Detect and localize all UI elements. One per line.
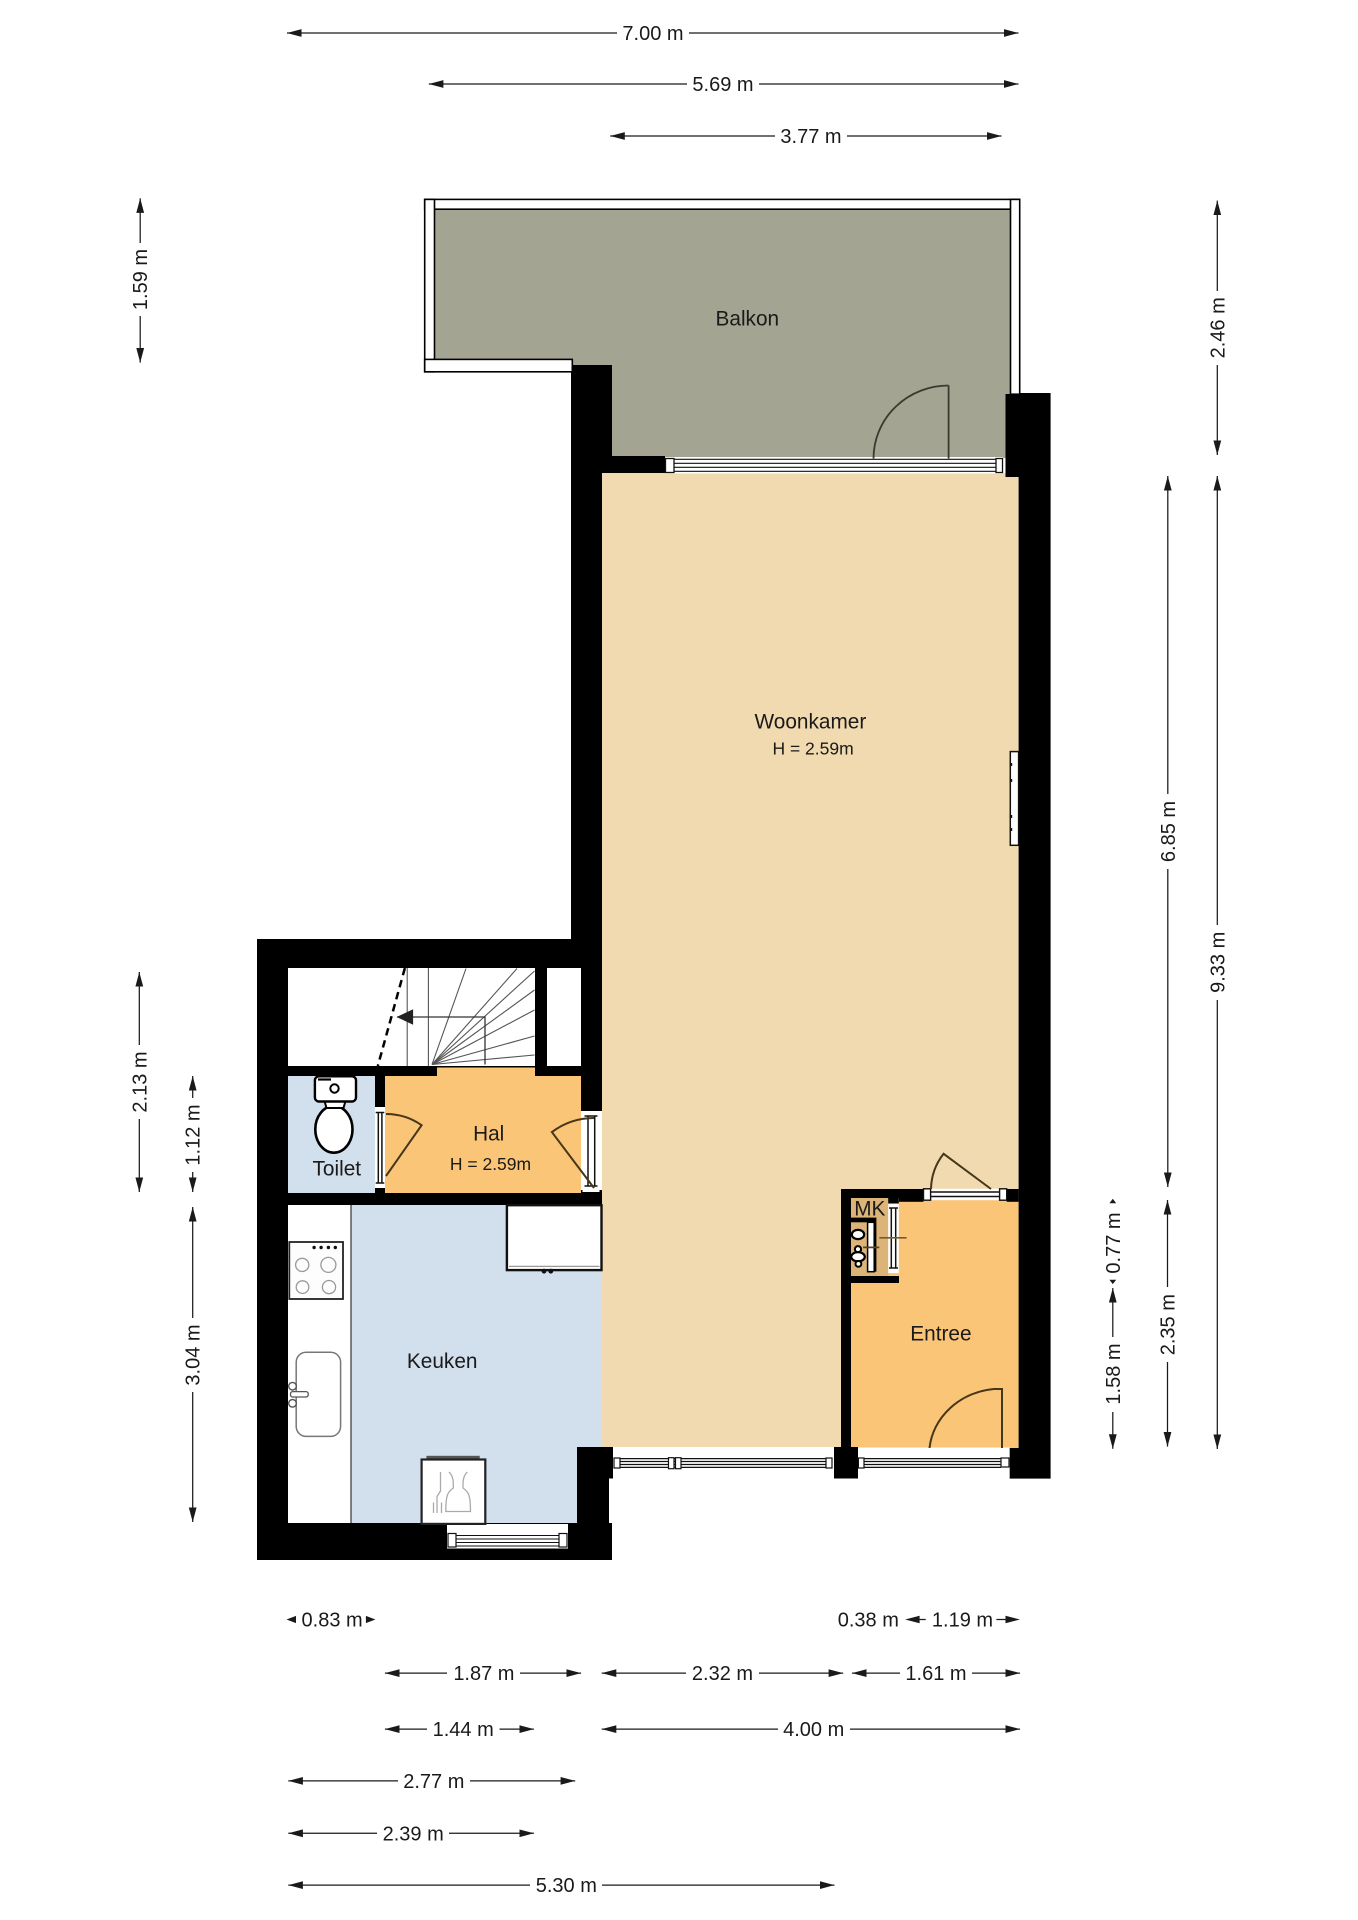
svg-text:MK: MK xyxy=(854,1197,885,1220)
svg-text:H = 2.59m: H = 2.59m xyxy=(772,739,853,759)
svg-text:Toilet: Toilet xyxy=(313,1158,362,1181)
svg-text:H = 2.59m: H = 2.59m xyxy=(450,1154,531,1174)
svg-text:Woonkamer: Woonkamer xyxy=(755,710,867,733)
svg-text:0.83 m: 0.83 m xyxy=(302,1610,363,1632)
svg-text:1.59 m: 1.59 m xyxy=(130,249,152,310)
svg-text:1.44 m: 1.44 m xyxy=(433,1719,494,1741)
svg-text:Balkon: Balkon xyxy=(716,308,780,331)
svg-text:5.69 m: 5.69 m xyxy=(692,74,753,96)
svg-text:1.12 m: 1.12 m xyxy=(183,1104,205,1165)
svg-text:1.19 m: 1.19 m xyxy=(932,1610,993,1632)
svg-text:1.58 m: 1.58 m xyxy=(1103,1343,1125,1404)
svg-text:3.04 m: 3.04 m xyxy=(183,1324,205,1385)
svg-text:0.38 m: 0.38 m xyxy=(838,1610,899,1632)
svg-text:0.77 m: 0.77 m xyxy=(1103,1212,1125,1273)
svg-text:1.61 m: 1.61 m xyxy=(905,1663,966,1685)
svg-text:Keuken: Keuken xyxy=(407,1350,478,1373)
svg-text:4.00 m: 4.00 m xyxy=(783,1719,844,1741)
svg-text:6.85 m: 6.85 m xyxy=(1158,801,1180,862)
svg-text:1.87 m: 1.87 m xyxy=(453,1663,514,1685)
svg-text:3.77 m: 3.77 m xyxy=(780,126,841,148)
svg-text:2.32 m: 2.32 m xyxy=(692,1663,753,1685)
svg-text:2.35 m: 2.35 m xyxy=(1158,1294,1180,1355)
svg-text:Entree: Entree xyxy=(910,1322,971,1345)
svg-text:Hal: Hal xyxy=(473,1123,504,1146)
svg-text:2.77 m: 2.77 m xyxy=(403,1771,464,1793)
svg-text:5.30 m: 5.30 m xyxy=(536,1875,597,1897)
svg-text:2.13 m: 2.13 m xyxy=(129,1051,151,1112)
svg-text:2.39 m: 2.39 m xyxy=(383,1823,444,1845)
svg-text:2.46 m: 2.46 m xyxy=(1207,297,1229,358)
svg-text:9.33 m: 9.33 m xyxy=(1207,932,1229,993)
svg-text:7.00 m: 7.00 m xyxy=(622,23,683,45)
